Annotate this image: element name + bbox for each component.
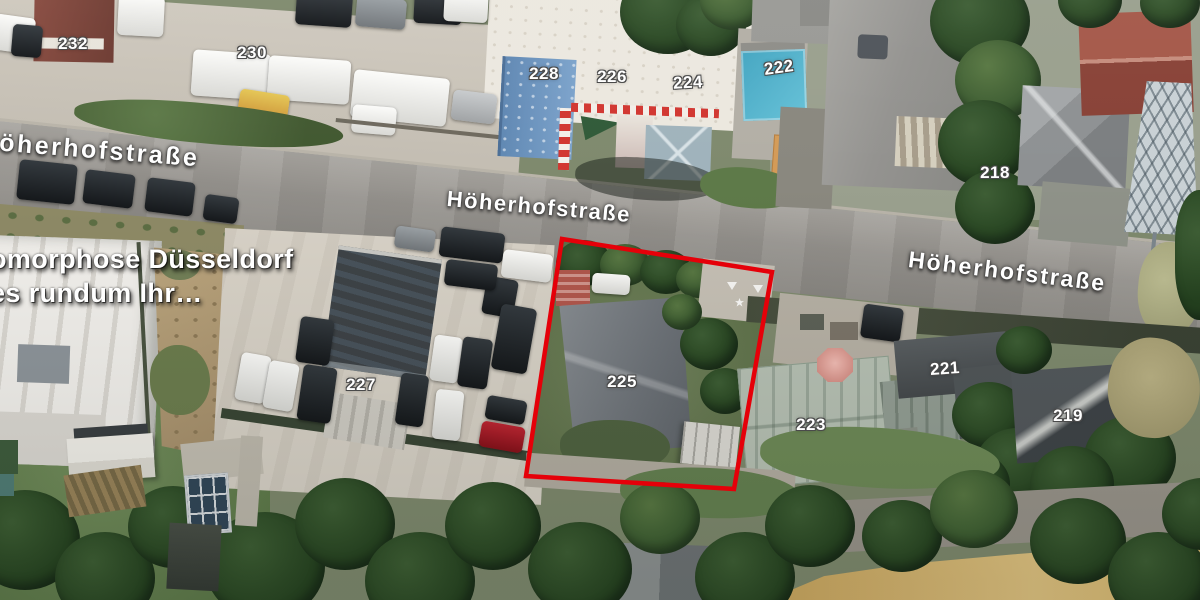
house-number-label-232[interactable]: 232 [58,34,88,54]
street-label-hoeherhofstrasse-right[interactable]: Höherhofstraße [907,246,1108,297]
house-number-label-224[interactable]: 224 [673,72,704,94]
house-number-label-230[interactable]: 230 [237,43,267,63]
house-number-label-222[interactable]: 222 [763,56,795,80]
map-labels: Höherhofstraße Höherhofstraße Höherhofst… [0,0,1200,600]
satellite-map[interactable]: Höherhofstraße Höherhofstraße Höherhofst… [0,0,1200,600]
street-label-hoeherhofstrasse-left[interactable]: Höherhofstraße [0,127,200,173]
house-number-label-219[interactable]: 219 [1053,406,1083,426]
house-number-label-228[interactable]: 228 [529,64,559,84]
house-number-label-227[interactable]: 227 [346,375,376,395]
street-label-hoeherhofstrasse-center[interactable]: Höherhofstraße [446,186,632,228]
business-overlay-line1: omorphose Düsseldorf [0,242,294,276]
house-number-label-218[interactable]: 218 [980,163,1010,183]
house-number-label-226[interactable]: 226 [597,67,627,87]
business-overlay-line2: es rundum Ihr… [0,276,294,310]
business-overlay[interactable]: omorphose Düsseldorf es rundum Ihr… [0,242,294,310]
house-number-label-223[interactable]: 223 [796,415,826,435]
house-number-label-225[interactable]: 225 [607,372,637,392]
house-number-label-221[interactable]: 221 [929,358,960,380]
